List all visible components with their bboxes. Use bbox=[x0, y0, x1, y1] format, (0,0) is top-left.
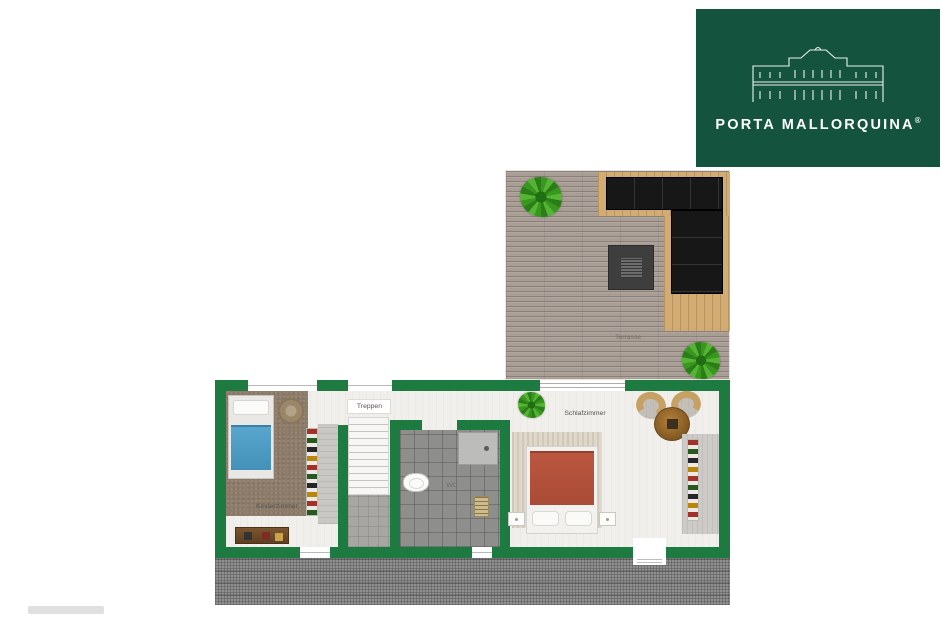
lower-roof-hatch bbox=[215, 558, 730, 605]
window bbox=[248, 380, 317, 391]
window bbox=[300, 547, 330, 558]
interior-wall bbox=[400, 420, 422, 430]
plant-icon bbox=[520, 177, 562, 217]
kids-bookshelf bbox=[306, 428, 318, 516]
window bbox=[472, 547, 492, 558]
window bbox=[348, 380, 392, 391]
bedroom-label: Schlafzimmer bbox=[554, 410, 615, 417]
fire-table bbox=[608, 245, 654, 290]
toilet bbox=[403, 473, 429, 492]
dresser bbox=[235, 527, 289, 544]
outdoor-sofa-right bbox=[671, 210, 723, 294]
brand-name: PORTA MALLORQUINA® bbox=[715, 116, 920, 133]
outdoor-sofa-top bbox=[606, 177, 723, 210]
corridor-floor bbox=[348, 495, 390, 547]
plant-icon bbox=[518, 392, 545, 418]
pillow bbox=[565, 511, 592, 526]
shower bbox=[458, 432, 498, 465]
round-rug bbox=[278, 398, 304, 424]
registered-trademark: ® bbox=[915, 116, 921, 125]
pillow bbox=[233, 400, 269, 415]
interior-wall bbox=[390, 420, 400, 547]
stairs-label-pill: Treppen bbox=[347, 399, 391, 414]
bed-cover bbox=[530, 451, 594, 505]
bathroom-label: WC bbox=[442, 482, 462, 489]
nightstand bbox=[599, 512, 616, 526]
staircase bbox=[348, 417, 389, 495]
terrace-area: Terrasse bbox=[505, 170, 730, 380]
finca-facade-icon bbox=[743, 44, 893, 106]
interior-wall bbox=[338, 425, 348, 547]
interior-wall bbox=[500, 420, 510, 547]
kids-room-label: Kinderzimmer bbox=[246, 503, 307, 510]
blue-blanket bbox=[231, 425, 271, 470]
floorplan-page: Terrasse Treppen K bbox=[0, 0, 945, 630]
fire-table-burner bbox=[621, 258, 642, 278]
double-bed bbox=[526, 446, 598, 534]
towel-radiator bbox=[474, 496, 489, 517]
brand-logo: PORTA MALLORQUINA® bbox=[696, 9, 940, 167]
nightstand bbox=[508, 512, 525, 526]
kids-closet bbox=[318, 424, 338, 524]
bedroom-bookshelf bbox=[687, 439, 699, 521]
stairs-label: Treppen bbox=[356, 403, 381, 410]
plant-icon bbox=[682, 342, 720, 379]
watermark bbox=[28, 606, 104, 614]
exterior-door bbox=[633, 538, 666, 565]
terrace-sliding-door bbox=[540, 380, 625, 391]
terrace-label: Terrasse bbox=[608, 334, 649, 341]
pillow bbox=[532, 511, 559, 526]
kids-bed bbox=[228, 395, 274, 479]
